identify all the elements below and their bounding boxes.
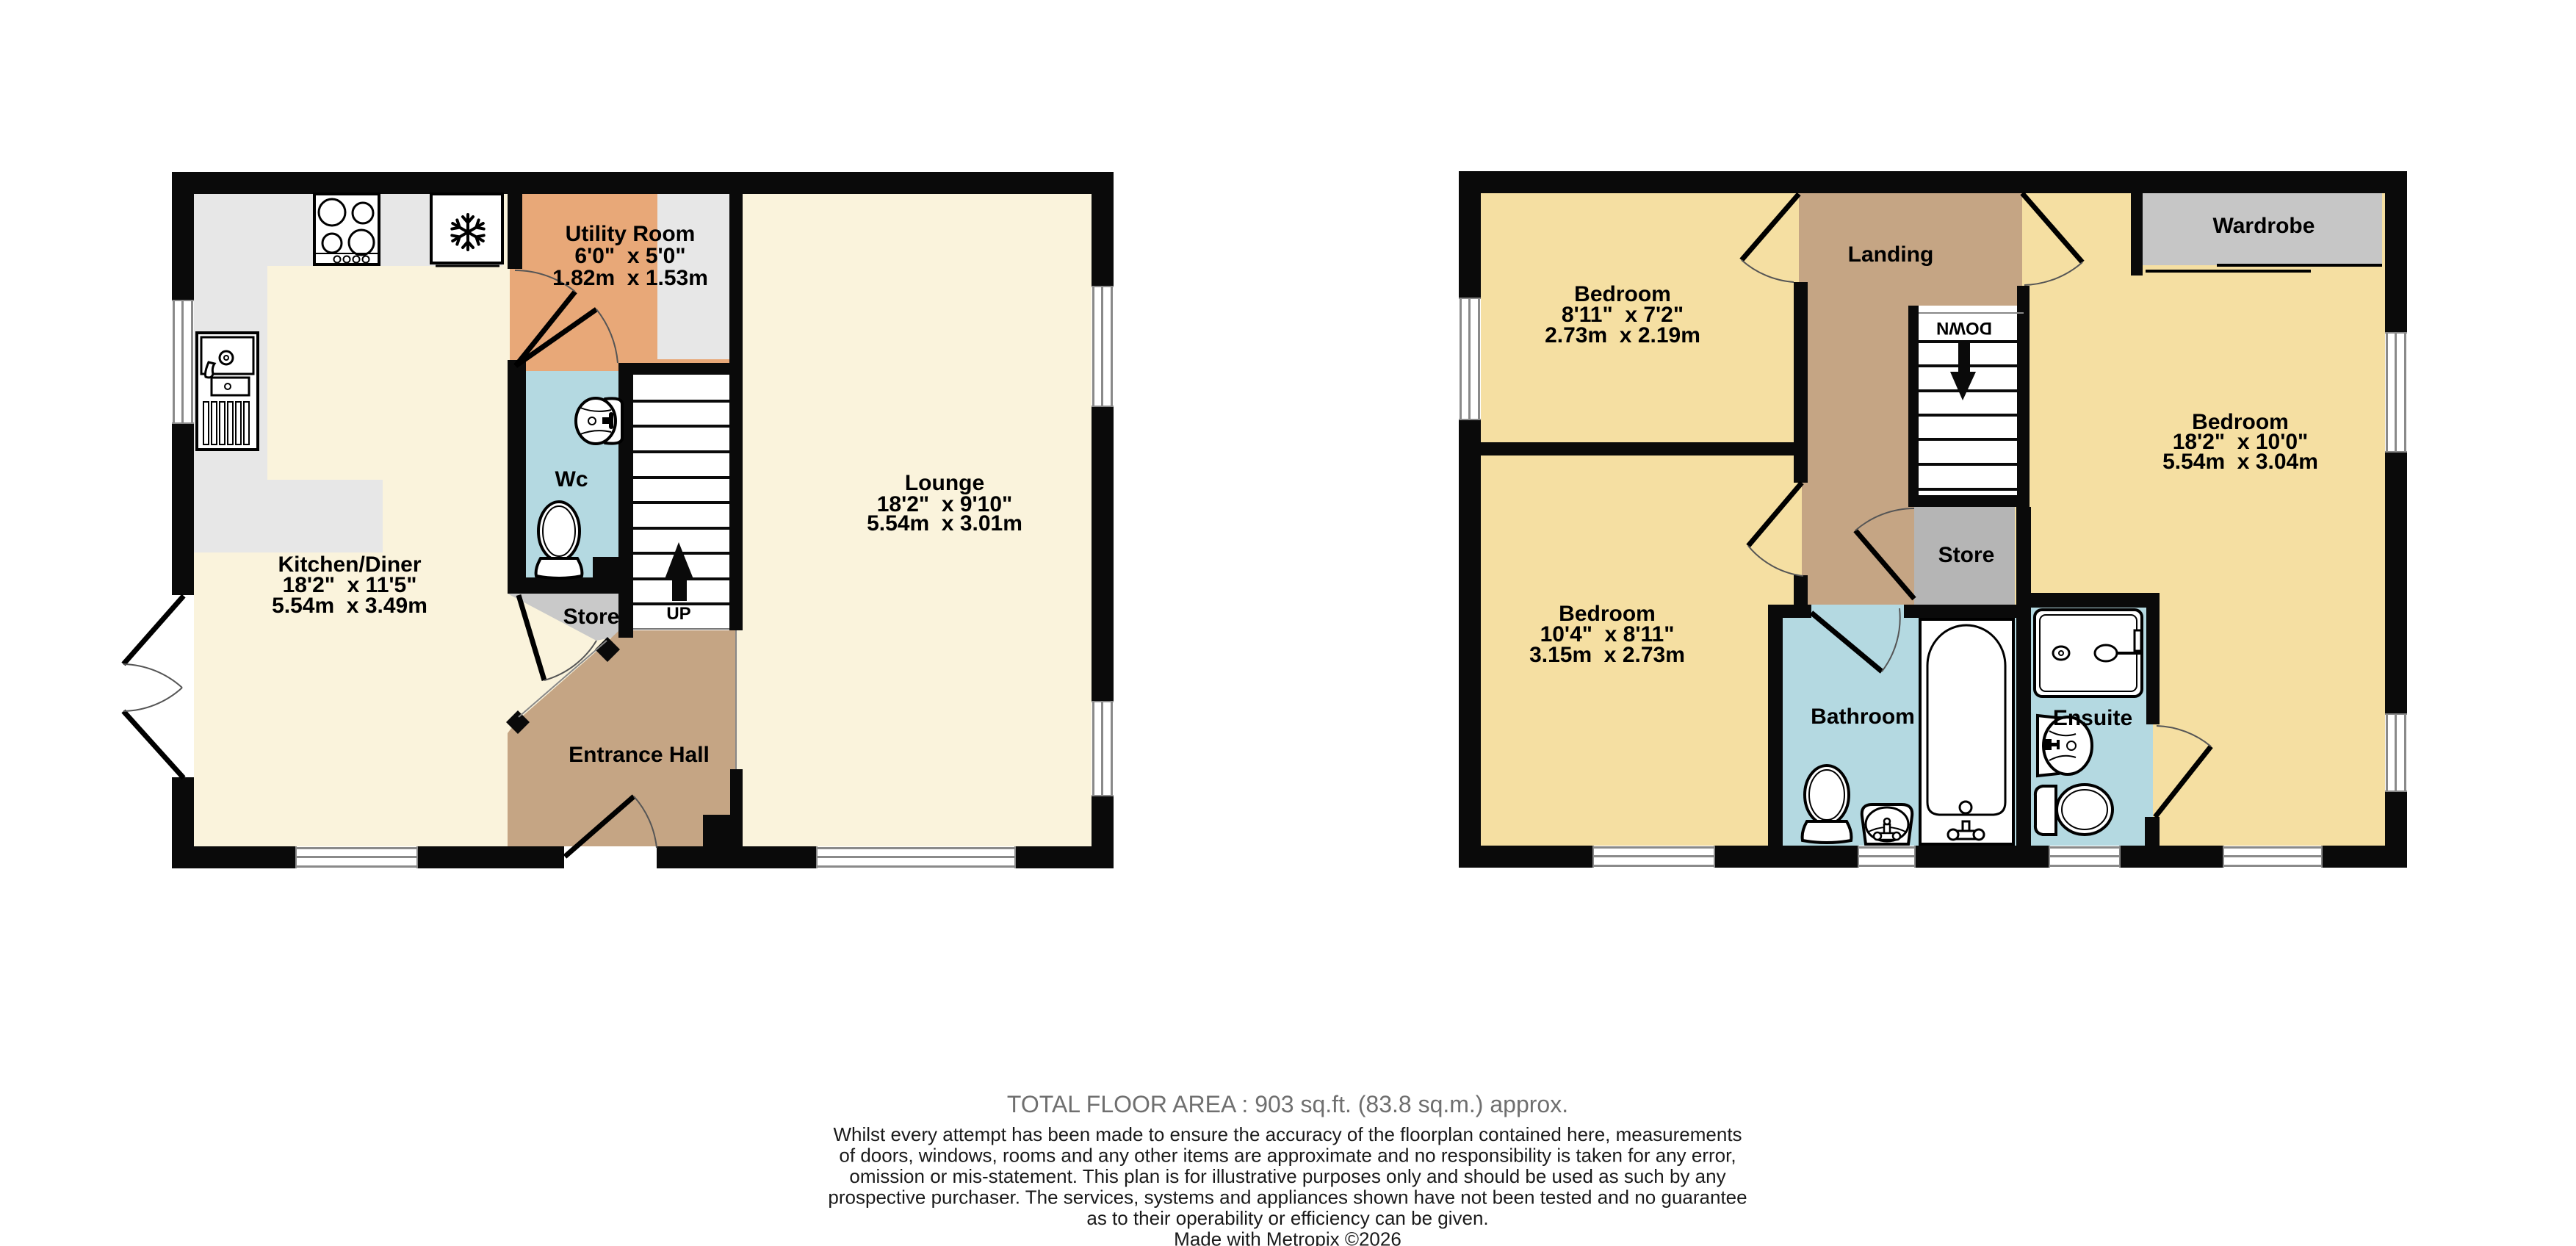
svg-text:omission or mis-statement. Thi: omission or mis-statement. This plan is … [849, 1165, 1725, 1187]
svg-text:Landing: Landing [1848, 242, 1934, 267]
svg-text:5.54m x 3.01m: 5.54m x 3.01m [867, 511, 1022, 536]
svg-text:prospective purchaser. The ser: prospective purchaser. The services, sys… [828, 1186, 1747, 1209]
svg-text:Wardrobe: Wardrobe [2213, 214, 2315, 238]
svg-text:Ensuite: Ensuite [2053, 706, 2132, 730]
svg-text:2.73m x 2.19m: 2.73m x 2.19m [1545, 323, 1700, 347]
svg-text:5.54m x 3.49m: 5.54m x 3.49m [272, 594, 427, 618]
svg-text:6'0" x 5'0": 6'0" x 5'0" [574, 244, 685, 268]
svg-text:UP: UP [666, 604, 690, 624]
svg-text:as to their operability or eff: as to their operability or efficiency ca… [1086, 1207, 1488, 1229]
svg-text:Store: Store [563, 605, 620, 629]
svg-text:Entrance Hall: Entrance Hall [569, 743, 710, 767]
svg-text:Wc: Wc [555, 467, 588, 491]
svg-text:1.82m x 1.53m: 1.82m x 1.53m [552, 266, 708, 290]
svg-text:DOWN: DOWN [1936, 318, 1992, 338]
svg-text:of doors, windows, rooms and a: of doors, windows, rooms and any other i… [839, 1145, 1736, 1167]
svg-text:Whilst every attempt has been: Whilst every attempt has been made to en… [833, 1123, 1742, 1145]
svg-text:Store: Store [1938, 543, 1995, 567]
svg-text:Bathroom: Bathroom [1811, 705, 1915, 729]
svg-text:3.15m x 2.73m: 3.15m x 2.73m [1529, 643, 1685, 667]
svg-text:TOTAL FLOOR AREA : 903 sq.ft.: TOTAL FLOOR AREA : 903 sq.ft. (83.8 sq.m… [1007, 1091, 1568, 1117]
svg-text:5.54m x 3.04m: 5.54m x 3.04m [2162, 450, 2318, 474]
svg-text:Made with Metropix ©2026: Made with Metropix ©2026 [1174, 1228, 1401, 1246]
svg-text:Utility Room: Utility Room [566, 222, 696, 246]
